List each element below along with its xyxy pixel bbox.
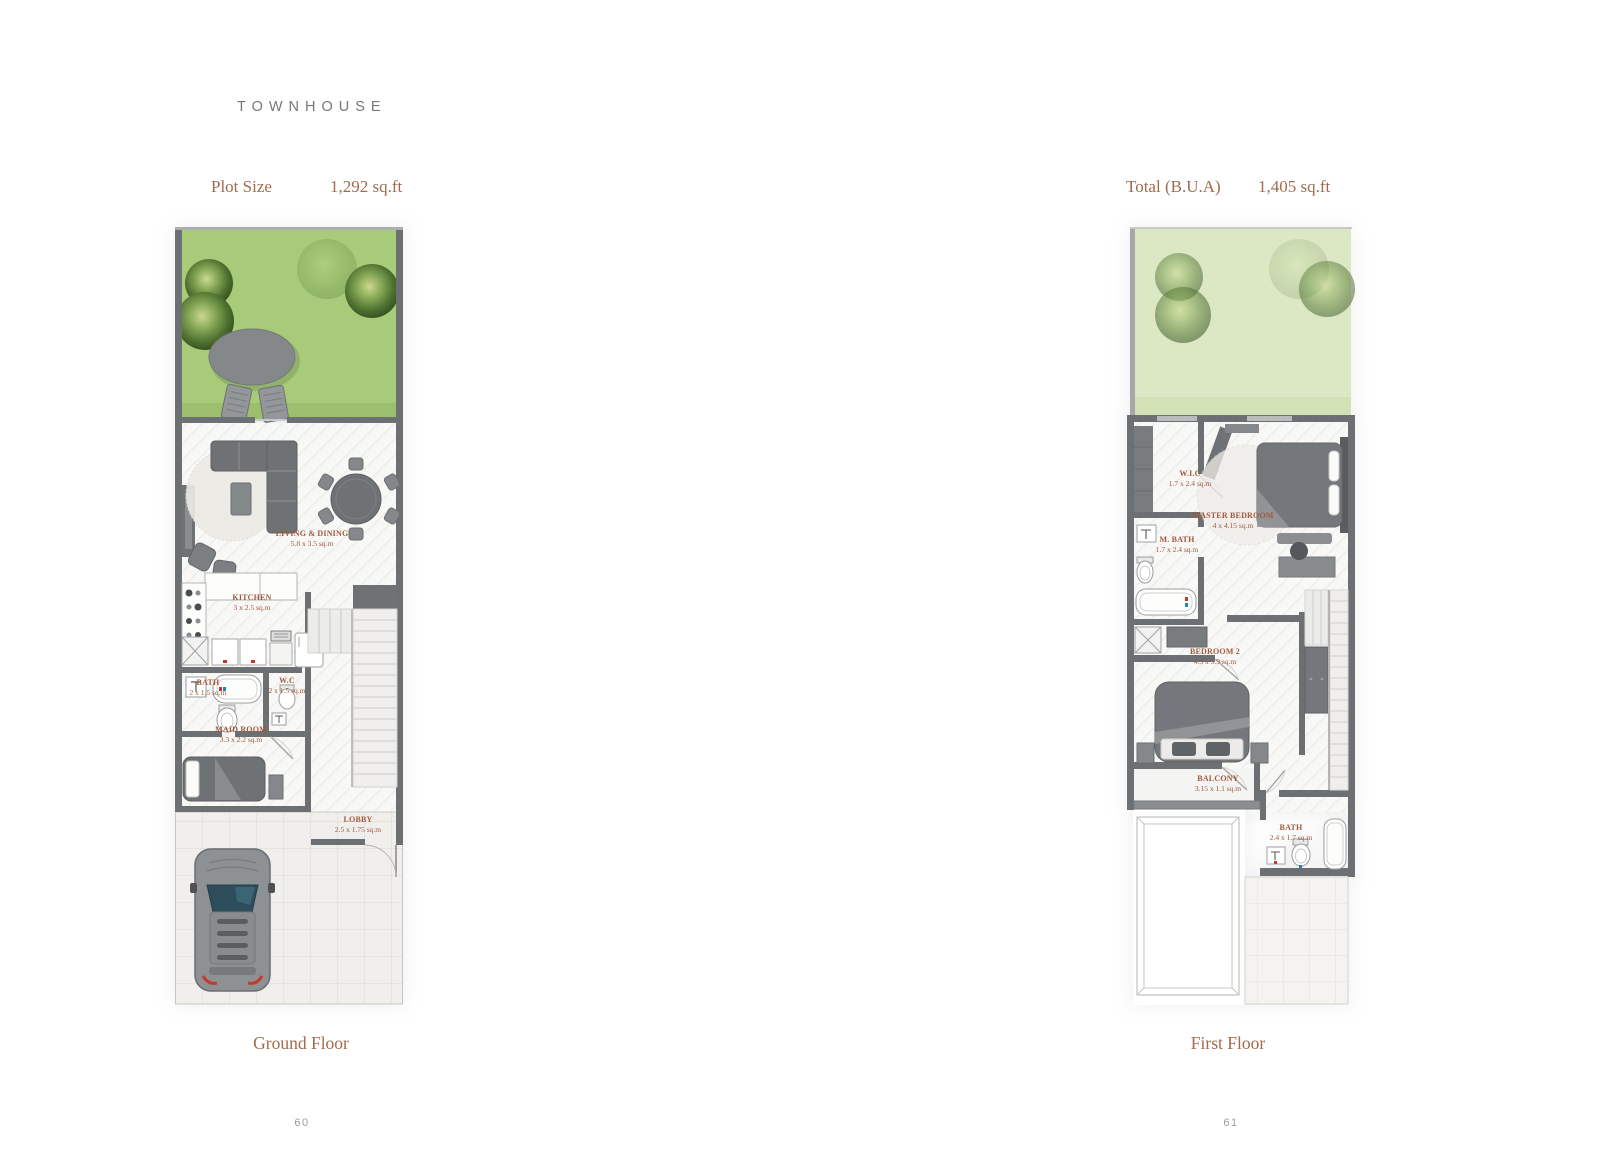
- page-number-right: 61: [1223, 1117, 1238, 1129]
- single-bed-icon: [183, 757, 265, 801]
- toilet-icon: [1292, 839, 1310, 868]
- first-floor-plan: W.I.C 1.7 x 2.4 sq.m M. BATH 1.7 x 2.4 s…: [1127, 227, 1355, 1005]
- bench-icon: [1277, 533, 1332, 544]
- microwave-icon: [271, 631, 291, 641]
- nightstand-icon: [1251, 743, 1268, 763]
- bathtub-icon: [213, 675, 261, 703]
- coffee-table-icon: [231, 483, 251, 515]
- shower-icon: [1135, 627, 1161, 653]
- nightstand-icon: [1137, 743, 1154, 763]
- bua-value: 1,405 sq.ft: [1258, 177, 1330, 197]
- first-floor-drawing: [1127, 227, 1355, 1005]
- bathtub-icon: [1136, 589, 1196, 615]
- sink-icon: [272, 713, 286, 725]
- balcony-railing: [1134, 801, 1260, 809]
- wardrobe-icon: [1305, 647, 1328, 713]
- toilet-icon: [279, 685, 295, 709]
- bua-label: Total (B.U.A): [1126, 177, 1221, 197]
- plot-size-label: Plot Size: [211, 177, 272, 197]
- stair-closet-icon: [353, 585, 397, 609]
- page-number-left: 60: [294, 1117, 309, 1129]
- vanity-cabinet-icon: [1167, 627, 1207, 647]
- tree-icon: [345, 264, 399, 318]
- kitchen-cabinet-icon: [205, 573, 297, 600]
- garden: [176, 229, 401, 423]
- sink-icon: [212, 639, 238, 665]
- double-bed-icon: [1155, 682, 1249, 762]
- car-icon: [190, 849, 275, 991]
- ground-floor-caption: Ground Floor: [253, 1033, 349, 1054]
- tree-icon: [1155, 287, 1211, 343]
- toilet-icon: [1137, 557, 1153, 583]
- ground-floor-plan: LIVING & DINING 5.8 x 3.5 sq.m KITCHEN 3…: [175, 227, 403, 1005]
- toilet-icon: [217, 705, 237, 732]
- first-floor-caption: First Floor: [1191, 1033, 1265, 1054]
- roof-tiles-faded: [1245, 877, 1348, 1004]
- bathtub-icon: [1324, 819, 1346, 869]
- garden-faded: [1130, 227, 1355, 415]
- desk-icon: [1279, 557, 1335, 577]
- balcony-area: [1134, 767, 1260, 809]
- side-table-icon: [269, 775, 283, 799]
- ground-floor-drawing: [175, 227, 403, 1005]
- garden-table-icon: [209, 329, 295, 385]
- sink-icon: [240, 639, 266, 665]
- chair-icon: [1290, 542, 1308, 560]
- sink-icon: [1267, 847, 1285, 864]
- tree-icon: [1299, 261, 1355, 317]
- plot-size-value: 1,292 sq.ft: [330, 177, 402, 197]
- laundry-icon: [182, 637, 208, 665]
- lounger-icon: [258, 385, 289, 423]
- counter-icon: [270, 643, 292, 665]
- page-title: TOWNHOUSE: [237, 99, 387, 115]
- double-bed-icon: [1257, 437, 1348, 533]
